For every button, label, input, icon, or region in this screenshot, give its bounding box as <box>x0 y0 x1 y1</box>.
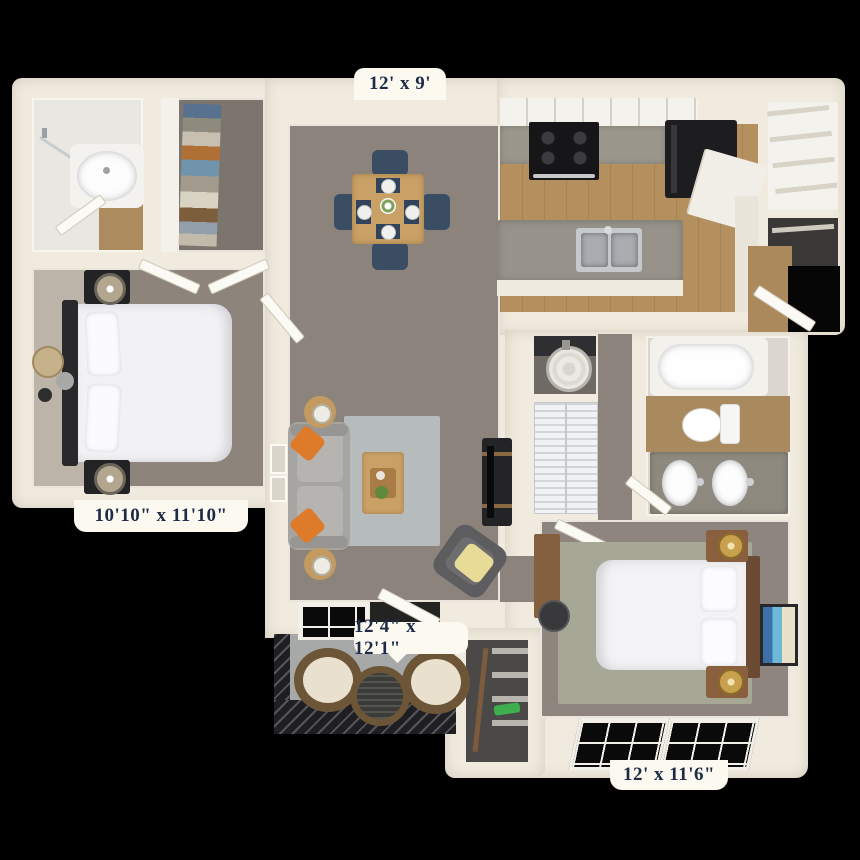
louvered-closet-door <box>566 402 598 514</box>
dinner-plate <box>381 225 396 240</box>
dimension-label-bedroom2: 12' x 11'6" <box>610 760 728 790</box>
bathtub1 <box>77 151 137 201</box>
sink-basin <box>581 233 608 267</box>
flower-centerpiece <box>380 198 396 214</box>
wall-art-frame <box>270 444 287 474</box>
dinner-plate <box>381 179 396 194</box>
dimension-text: 12' x 11'6" <box>623 764 715 786</box>
bathtub1-faucet <box>103 167 110 174</box>
patio-table <box>350 666 410 726</box>
louvered-closet-door <box>534 402 566 514</box>
pantry-shelves <box>767 105 839 209</box>
tray-decor <box>376 471 385 480</box>
water-heater-pipe <box>562 340 570 350</box>
gold-table-lamp <box>718 669 744 695</box>
water-heater <box>546 346 592 392</box>
shower-head-icon <box>42 128 47 138</box>
sofa-armrest <box>290 536 348 548</box>
entry-wood-floor <box>748 246 792 332</box>
wall-decor-plate-medium <box>56 372 74 390</box>
oven-handle <box>533 174 595 178</box>
table-lamp <box>94 273 126 305</box>
kitchen-island-front <box>497 280 683 296</box>
vanity-faucet <box>696 478 704 486</box>
storage-shelves <box>492 648 528 732</box>
wall-art-frame <box>270 476 287 502</box>
gold-table-lamp <box>718 533 744 559</box>
bathtub2 <box>658 344 754 390</box>
dimension-text: 10'10" x 11'10" <box>94 505 227 527</box>
bed1-pillow <box>84 311 121 377</box>
end-table-lamp <box>312 404 332 424</box>
floorplan-canvas: 12' x 9' 10'10" x 11'10" 12'4" x 12'1" 1… <box>0 0 860 860</box>
refrigerator-highlight <box>671 125 677 193</box>
dimension-text: 12'4" x 12'1" <box>354 616 468 660</box>
tv-screen <box>487 446 494 518</box>
dining-chair <box>422 194 450 230</box>
toilet-bowl <box>682 408 722 442</box>
vanity-sink <box>712 460 748 506</box>
dinner-plate <box>405 205 420 220</box>
stove-burners <box>535 128 593 168</box>
hallway-floor <box>598 334 632 520</box>
dimension-label-living: 12'4" x 12'1" <box>354 622 468 654</box>
bed2-pillow <box>700 566 738 612</box>
end-table-lamp <box>312 556 332 576</box>
toilet-tank <box>720 404 740 444</box>
wall-art-abstract <box>760 604 798 666</box>
bed2-pillow <box>700 618 738 666</box>
sink-faucet <box>604 226 612 234</box>
desk-chair <box>538 600 570 632</box>
sink-basin <box>611 233 638 267</box>
bed1-pillow <box>84 383 122 453</box>
table-lamp <box>94 463 126 495</box>
potted-plant <box>375 486 388 499</box>
hanging-clothes <box>179 103 222 246</box>
vanity-sink <box>662 460 698 506</box>
dimension-label-dining: 12' x 9' <box>354 68 446 100</box>
dinner-plate <box>357 205 372 220</box>
bed2-headboard <box>746 556 760 678</box>
dining-chair <box>372 242 408 270</box>
dimension-label-bedroom1: 10'10" x 11'10" <box>74 500 248 532</box>
wall-decor-plate-small <box>38 388 52 402</box>
vanity-faucet <box>746 478 754 486</box>
dimension-text: 12' x 9' <box>369 73 431 95</box>
closet-shelf-band <box>161 98 179 252</box>
dining-chair <box>372 150 408 176</box>
